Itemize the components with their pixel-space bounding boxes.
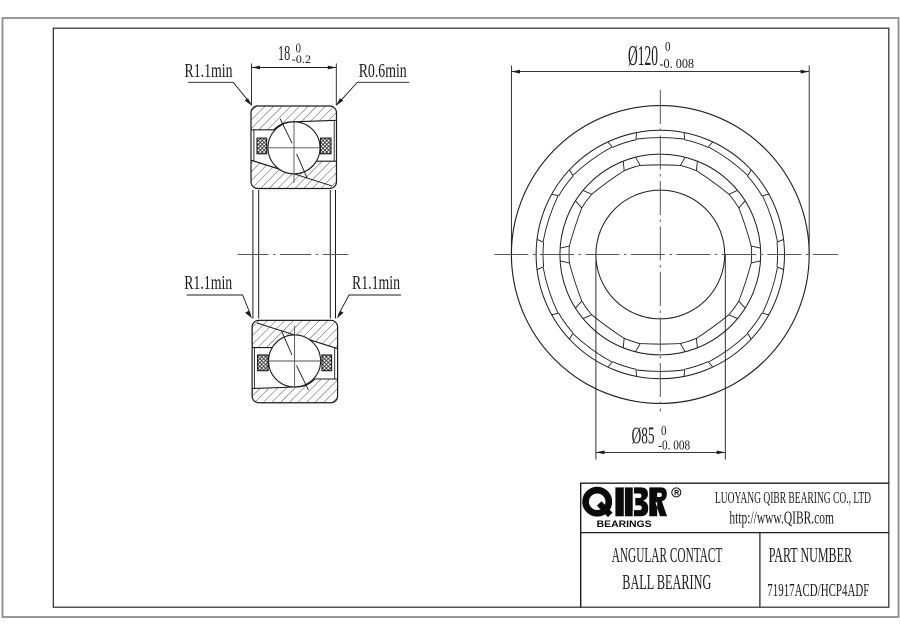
- svg-text:R1.1min: R1.1min: [185, 60, 233, 82]
- svg-text:-0.2: -0.2: [292, 52, 311, 66]
- svg-text:71917ACD/HCP4ADF: 71917ACD/HCP4ADF: [767, 580, 869, 600]
- svg-text:BEARINGS: BEARINGS: [597, 519, 652, 529]
- svg-text:R1.1min: R1.1min: [184, 272, 232, 294]
- svg-text:PART NUMBER: PART NUMBER: [769, 543, 852, 567]
- svg-text:BALL BEARING: BALL BEARING: [622, 570, 711, 594]
- svg-text:Ø85: Ø85: [632, 424, 655, 450]
- svg-text:0: 0: [665, 40, 671, 55]
- svg-text:Ø120: Ø120: [628, 41, 658, 72]
- svg-text:R1.1min: R1.1min: [352, 272, 400, 294]
- svg-text:R0.6min: R0.6min: [359, 60, 407, 82]
- svg-text:R: R: [674, 490, 679, 497]
- svg-text:ANGULAR CONTACT: ANGULAR CONTACT: [612, 543, 723, 567]
- svg-text:LUOYANG QIBR BEARING CO., LTD: LUOYANG QIBR BEARING CO., LTD: [715, 488, 871, 507]
- svg-text:18: 18: [278, 41, 290, 65]
- svg-text:http://www.QIBR.com: http://www.QIBR.com: [729, 507, 834, 527]
- svg-text:-0. 008: -0. 008: [658, 437, 690, 452]
- svg-text:-0. 008: -0. 008: [660, 56, 695, 71]
